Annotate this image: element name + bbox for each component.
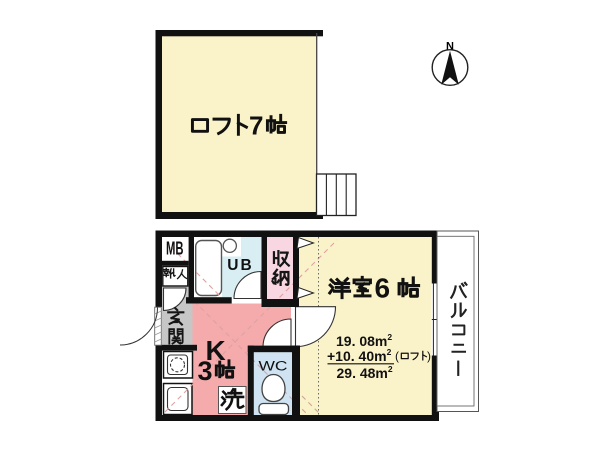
svg-text:UB: UB [227, 257, 253, 274]
svg-text:6: 6 [375, 273, 391, 304]
svg-text:29. 48m2: 29. 48m2 [337, 364, 393, 381]
svg-text:MB: MB [166, 239, 184, 259]
svg-text:): ) [427, 349, 431, 363]
svg-text:7: 7 [249, 111, 263, 141]
svg-text:19. 08m2: 19. 08m2 [336, 332, 392, 349]
svg-text:+10. 40m2: +10. 40m2 [327, 347, 392, 364]
svg-text:WC: WC [259, 359, 288, 374]
svg-text:N: N [446, 41, 454, 53]
svg-text:3: 3 [198, 356, 213, 386]
svg-text:(: ( [395, 349, 399, 363]
